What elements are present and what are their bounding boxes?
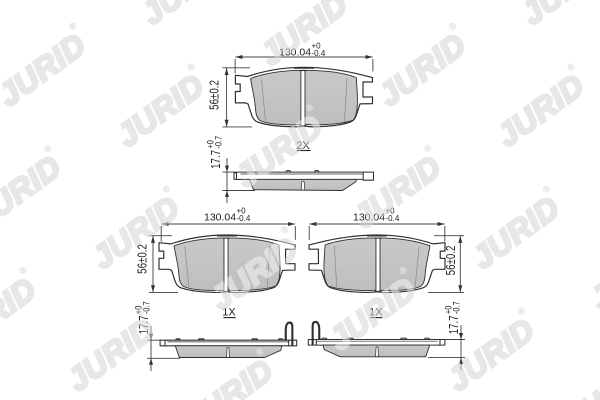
svg-text:56±0.2: 56±0.2	[208, 80, 221, 110]
svg-text:56±0.2: 56±0.2	[445, 246, 458, 276]
svg-text:17.7: 17.7	[448, 315, 461, 334]
svg-text:17.7: 17.7	[210, 150, 223, 169]
svg-text:-0.7: -0.7	[213, 136, 224, 149]
svg-text:-0.4: -0.4	[237, 214, 251, 223]
svg-text:-0.4: -0.4	[312, 49, 326, 58]
svg-text:130.04: 130.04	[204, 212, 236, 224]
svg-text:-0.7: -0.7	[451, 301, 462, 314]
